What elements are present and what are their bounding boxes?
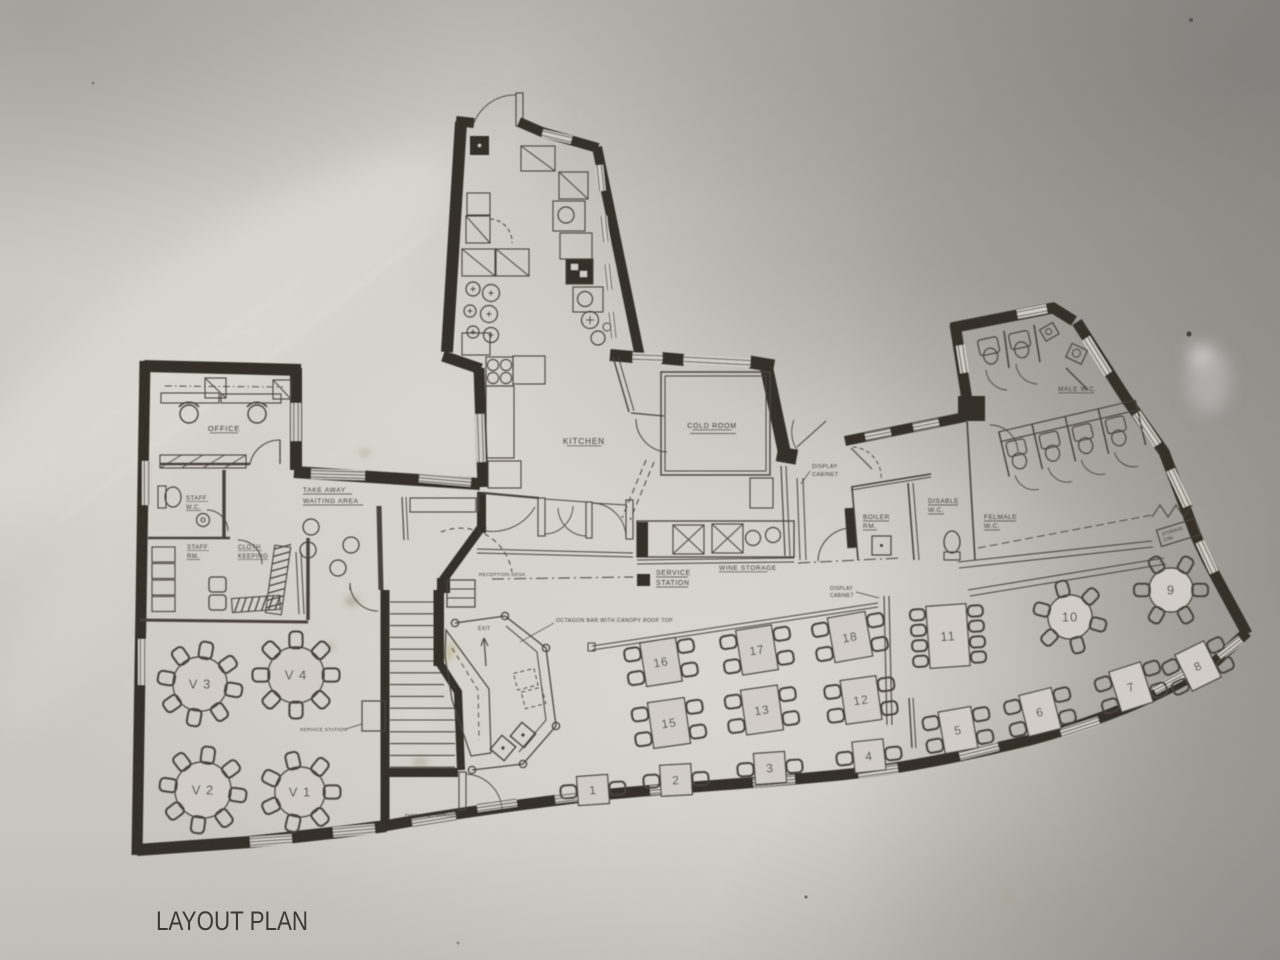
svg-text:LAYOUT PLAN: LAYOUT PLAN — [156, 906, 308, 936]
